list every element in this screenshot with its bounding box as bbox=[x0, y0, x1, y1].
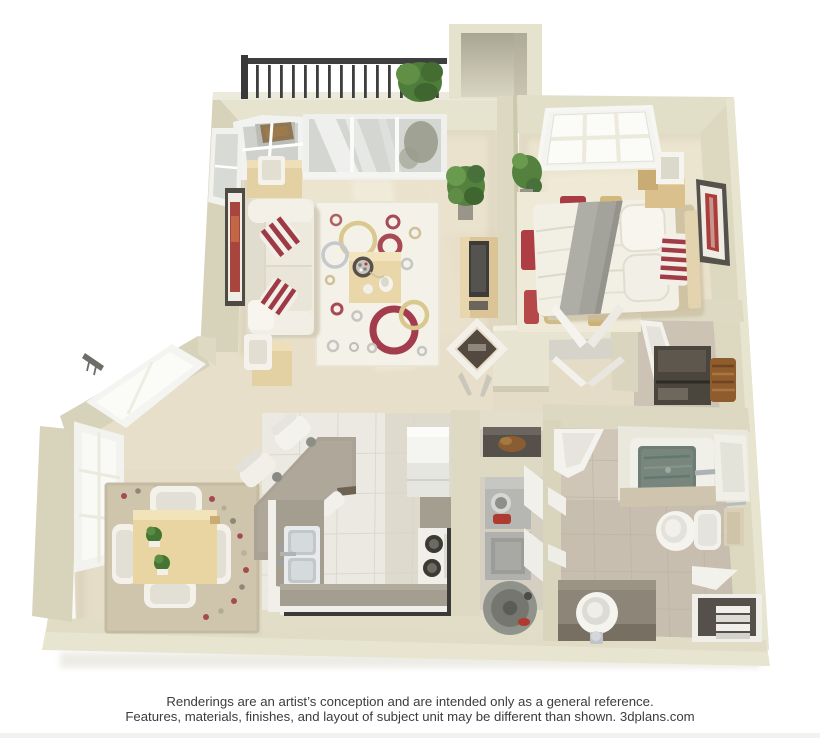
svg-text:Renderings are an artist’s con: Renderings are an artist’s conception an… bbox=[166, 694, 653, 709]
svg-text:Features, materials, finishes,: Features, materials, finishes, and layou… bbox=[125, 709, 694, 724]
